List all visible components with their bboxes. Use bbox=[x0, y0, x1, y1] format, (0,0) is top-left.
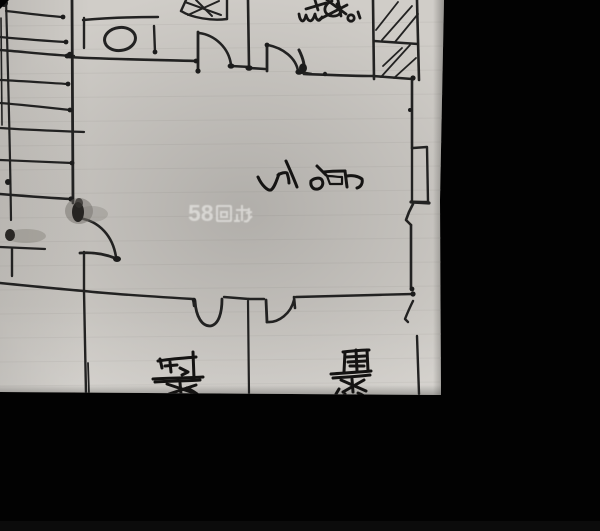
svg-text:58: 58 bbox=[188, 200, 214, 226]
